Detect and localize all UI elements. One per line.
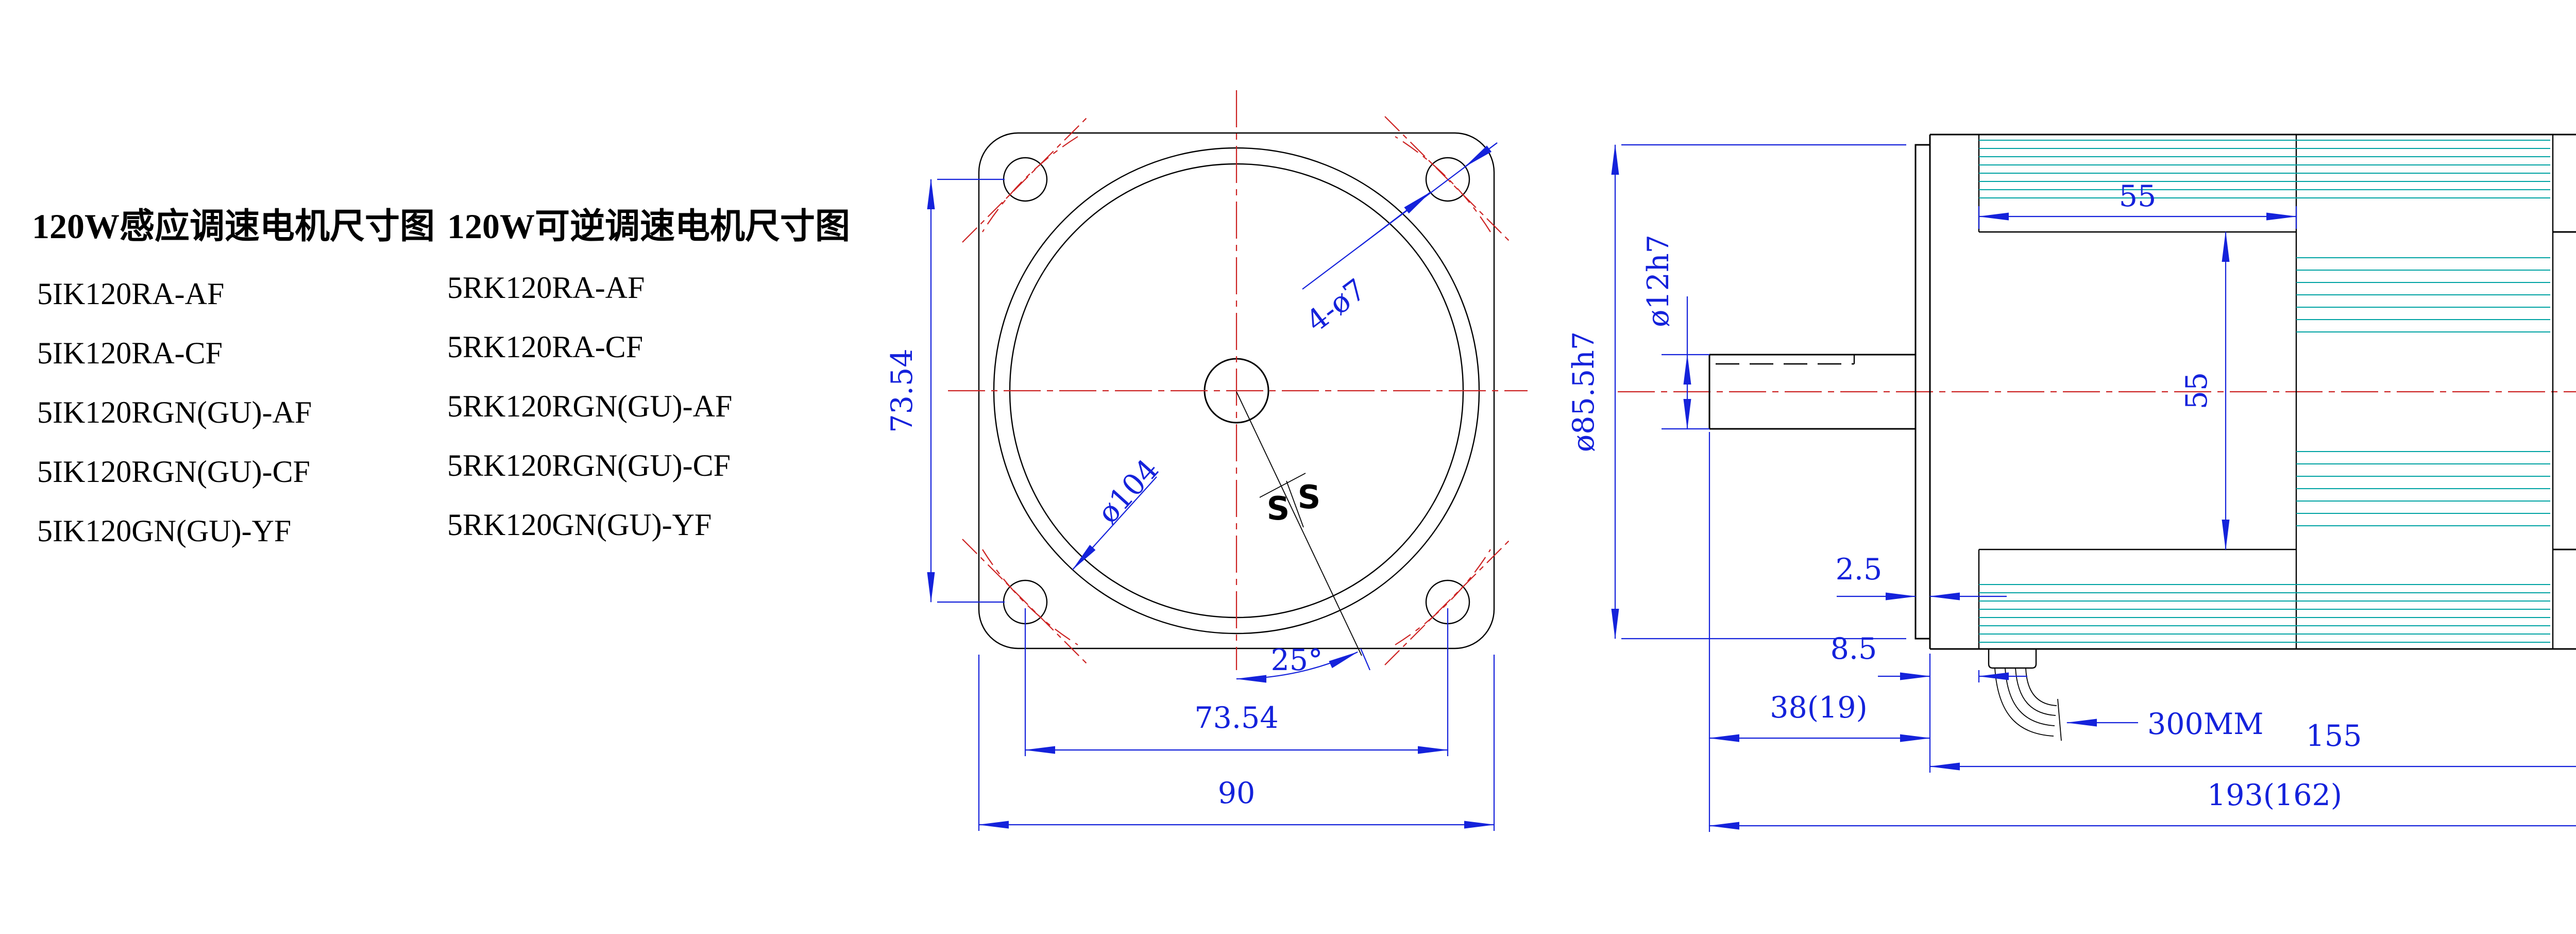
hole-pitch-value: 73.54 — [1194, 701, 1278, 735]
dim-front-section-height: 55 — [2180, 232, 2226, 549]
shaft-diameter-value: ø12h7 — [1641, 235, 1675, 327]
rotation-seal-mark: S S — [1260, 473, 1320, 527]
model-item: 5RK120RA-AF — [447, 271, 645, 305]
dim-total-length: 193(162) — [1709, 778, 2576, 826]
flange-thickness-value: 2.5 — [1836, 553, 1883, 587]
flange-offset-value: 8.5 — [1831, 632, 1877, 666]
pilot-diameter-value: ø85.5h7 — [1567, 331, 1601, 452]
title-reversible-motor: 120W可逆调速电机尺寸图 — [447, 207, 850, 246]
model-item: 5RK120GN(GU)-YF — [447, 508, 711, 542]
dim-body-diameter: ø104 — [1073, 453, 1165, 570]
rear-housing-mid — [2553, 232, 2576, 549]
body-diameter-value: ø104 — [1091, 453, 1165, 530]
angle-value: 25° — [1270, 643, 1323, 677]
cable-length-value: 300MM — [2147, 707, 2264, 741]
dim-shaft-length: 38(19) — [1709, 432, 1930, 832]
dim-shaft-diameter: ø12h7 — [1641, 235, 1709, 429]
dim-fin-section-length: 55 — [1979, 179, 2296, 229]
dim-hole-pitch-vertical: 73.54 — [885, 179, 1005, 602]
rear-housing-bottom — [2553, 549, 2576, 649]
model-list-reversible: 5RK120RA-AF 5RK120RA-CF 5RK120RGN(GU)-AF… — [447, 271, 732, 542]
drawing-page: { "theme": { "background": "#ffffff", "d… — [0, 0, 2576, 934]
model-list-induction: 5IK120RA-AF 5IK120RA-CF 5IK120RGN(GU)-AF… — [37, 277, 312, 548]
dim-hole-pitch-horizontal: 73.54 — [1025, 608, 1448, 756]
dimension-drawing: 120W感应调速电机尺寸图 120W可逆调速电机尺寸图 5IK120RA-AF … — [0, 0, 2576, 934]
seal-mark-letter: S — [1298, 478, 1321, 516]
rear-housing-top — [2553, 135, 2576, 232]
model-panel: 120W感应调速电机尺寸图 120W可逆调速电机尺寸图 5IK120RA-AF … — [32, 207, 850, 548]
model-item: 5RK120RGN(GU)-AF — [447, 389, 732, 423]
seal-mark-letter: S — [1267, 490, 1290, 527]
total-length-value: 193(162) — [2207, 778, 2342, 812]
shaft-length-value: 38(19) — [1770, 691, 1868, 725]
model-item: 5IK120RGN(GU)-AF — [37, 395, 312, 429]
model-item: 5IK120RGN(GU)-CF — [37, 455, 310, 489]
model-item: 5IK120RA-CF — [37, 336, 223, 370]
dim-flange-thickness: 2.5 — [1836, 553, 2007, 596]
fin-length-value: 55 — [2119, 179, 2157, 213]
dim-cable-angle: 25° — [1236, 392, 1370, 679]
model-item: 5RK120RA-CF — [447, 330, 643, 364]
frame-size-value: 90 — [1218, 776, 1256, 810]
front-view: 25° S S 4-ø7 ø104 — [885, 90, 1528, 831]
model-item: 5IK120RA-AF — [37, 277, 224, 311]
body-length-value: 155 — [2306, 719, 2362, 753]
hole-pitch-value: 73.54 — [885, 348, 919, 432]
side-view: ø85.5h7 ø12h7 55 55 — [1567, 135, 2576, 832]
dim-flange-to-body: 8.5 — [1831, 632, 2027, 682]
power-cable — [1989, 649, 2061, 741]
model-item: 5RK120RGN(GU)-CF — [447, 448, 731, 482]
dim-frame-size: 90 — [979, 655, 1494, 831]
title-induction-motor: 120W感应调速电机尺寸图 — [32, 207, 435, 246]
front-height-value: 55 — [2180, 372, 2214, 410]
model-item: 5IK120GN(GU)-YF — [37, 514, 291, 548]
label-cable-length: 300MM — [2067, 707, 2264, 741]
